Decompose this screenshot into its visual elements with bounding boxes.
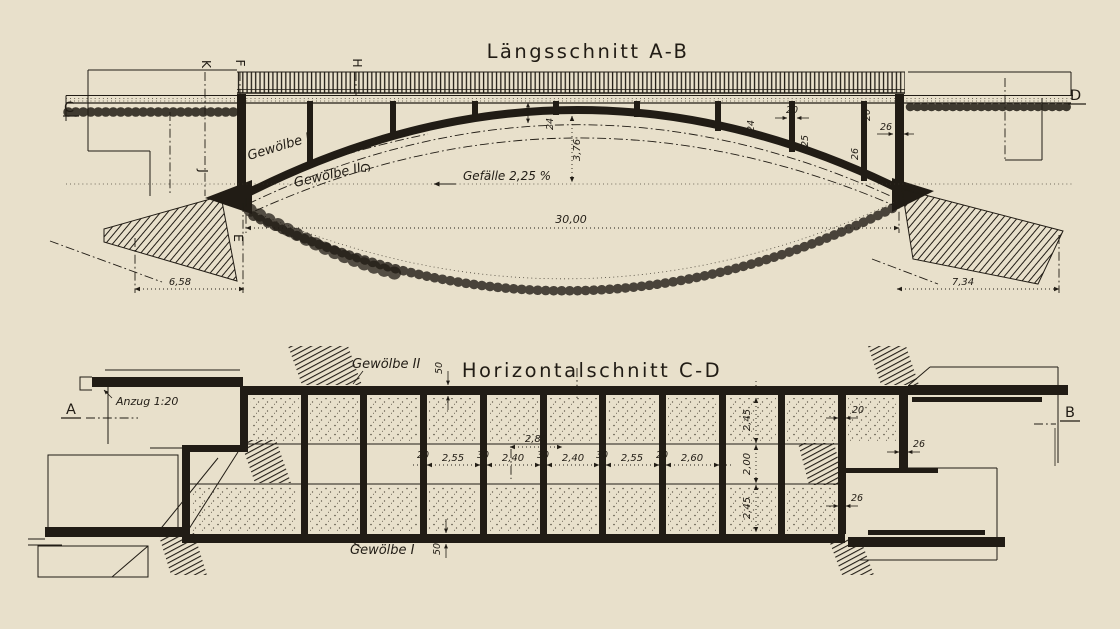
letter-h: H — [350, 58, 365, 67]
svg-text:7,34: 7,34 — [952, 277, 974, 288]
letter-j: J — [196, 168, 211, 173]
svg-text:20: 20 — [417, 450, 429, 461]
plan-gewoelbe-1-label: Gewölbe I — [350, 543, 415, 558]
right-approach-outline — [908, 72, 1071, 160]
railing-band — [237, 72, 905, 93]
svg-text:20: 20 — [786, 105, 798, 116]
svg-text:2,55: 2,55 — [442, 453, 464, 464]
letter-a: A — [66, 402, 76, 418]
svg-text:26: 26 — [913, 439, 925, 450]
svg-text:24: 24 — [545, 118, 556, 130]
svg-text:20: 20 — [852, 405, 864, 416]
svg-text:2,55: 2,55 — [621, 453, 643, 464]
svg-text:3,76: 3,76 — [572, 139, 583, 161]
dim-rise: 3,76 — [572, 116, 583, 182]
letter-d: D — [1070, 88, 1081, 104]
svg-text:20: 20 — [656, 450, 668, 461]
svg-text:2,80: 2,80 — [525, 434, 547, 445]
letter-b: B — [1065, 405, 1075, 421]
anzug-label: Anzug 1:20 — [115, 395, 178, 408]
laengsschnitt-title: Längsschnitt A-B — [487, 40, 690, 63]
svg-text:30,00: 30,00 — [555, 213, 587, 226]
dim-span: 30,00 — [246, 213, 899, 228]
letter-f: F — [233, 59, 248, 66]
plan-gewoelbe-2-label: Gewölbe II — [352, 357, 420, 372]
dim-foundation-left: 6,58 — [135, 277, 244, 289]
abutment-right — [902, 189, 1063, 284]
gewoelbe-1-label: Gewölbe I — [246, 131, 312, 164]
letter-c: C — [64, 100, 74, 116]
svg-text:30: 30 — [596, 450, 608, 461]
dim-arch-3: 26 — [850, 148, 861, 160]
riverbed-stones-large — [250, 210, 398, 274]
dim-deck: 20 — [862, 109, 873, 121]
laengsschnitt-section: Längsschnitt A-B — [50, 40, 1086, 293]
svg-text:2,40: 2,40 — [502, 453, 524, 464]
letter-k: K — [199, 60, 214, 69]
svg-text:2,00: 2,00 — [742, 453, 753, 475]
svg-text:6,58: 6,58 — [169, 277, 191, 288]
dim-arch-2: 25 — [800, 135, 811, 147]
abutment-left — [104, 196, 237, 281]
left-approach-outline — [88, 70, 237, 196]
excavation-line-right — [872, 259, 938, 284]
dim-arch-1: 24 — [746, 120, 757, 132]
grade-label: Gefälle 2,25 % — [463, 169, 551, 183]
dim-chain: 20 2,55 30 2,40 30 2,40 30 2,55 20 2,60 — [413, 450, 734, 465]
svg-text:2,45: 2,45 — [742, 497, 753, 519]
svg-text:2,45: 2,45 — [742, 409, 753, 431]
svg-text:26: 26 — [880, 122, 892, 133]
right-wing-outline — [848, 367, 1068, 560]
bridge-drawing: Längsschnitt A-B — [0, 0, 1120, 629]
horizontalschnitt-section: Horizontalschnitt C-D — [28, 346, 1080, 577]
svg-text:2,60: 2,60 — [681, 453, 703, 464]
svg-text:2,40: 2,40 — [562, 453, 584, 464]
horizontalschnitt-title: Horizontalschnitt C-D — [462, 359, 722, 382]
svg-text:50: 50 — [432, 543, 443, 555]
letter-e: E — [231, 234, 246, 242]
svg-text:50: 50 — [434, 362, 445, 374]
svg-text:30: 30 — [537, 450, 549, 461]
svg-text:26: 26 — [851, 493, 863, 504]
svg-text:30: 30 — [477, 450, 489, 461]
